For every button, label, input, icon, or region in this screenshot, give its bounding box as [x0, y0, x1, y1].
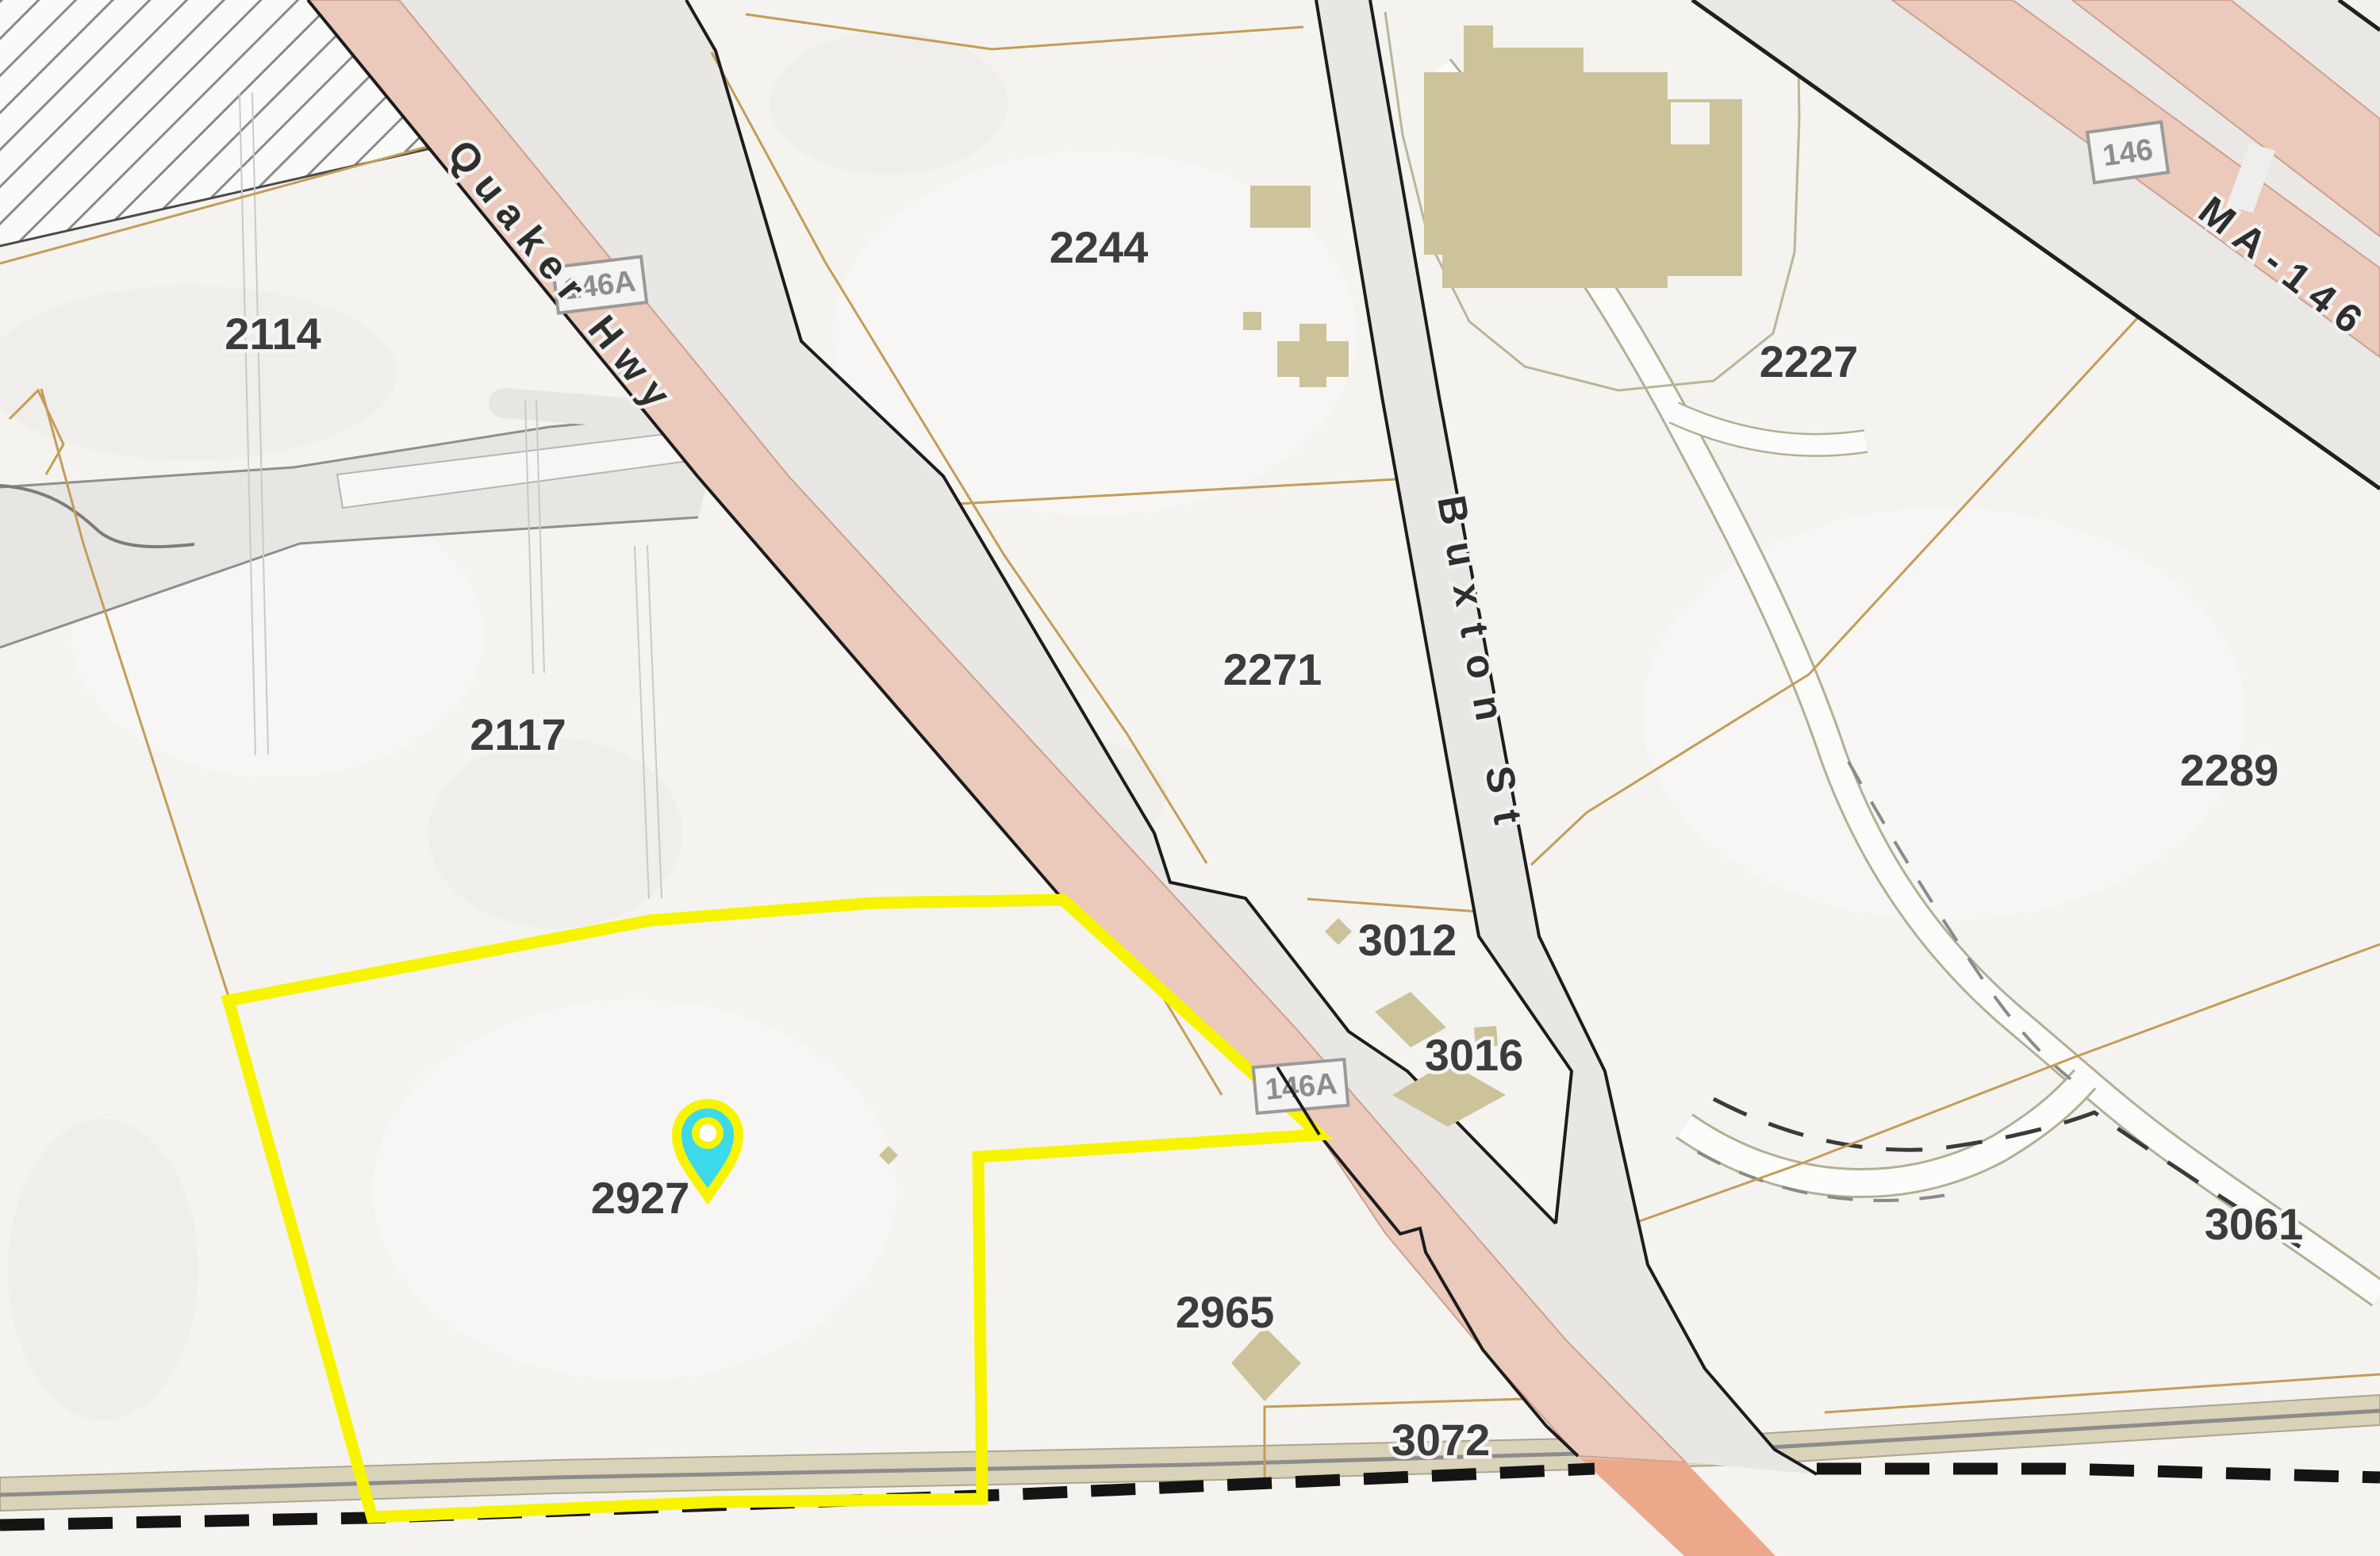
svg-text:3061: 3061: [2205, 1199, 2304, 1249]
svg-text:2289: 2289: [2180, 745, 2279, 795]
svg-text:2114: 2114: [225, 309, 321, 359]
svg-text:3072: 3072: [1392, 1415, 1491, 1465]
svg-text:2927: 2927: [591, 1173, 690, 1223]
svg-text:2965: 2965: [1176, 1287, 1275, 1337]
svg-text:146A: 146A: [1264, 1067, 1338, 1107]
svg-text:2227: 2227: [1760, 336, 1859, 386]
svg-text:2244: 2244: [1050, 222, 1149, 272]
svg-text:2117: 2117: [470, 709, 566, 759]
svg-text:3016: 3016: [1425, 1030, 1524, 1080]
svg-text:3012: 3012: [1358, 915, 1457, 965]
svg-text:146: 146: [2101, 133, 2155, 173]
svg-text:2271: 2271: [1223, 644, 1322, 694]
